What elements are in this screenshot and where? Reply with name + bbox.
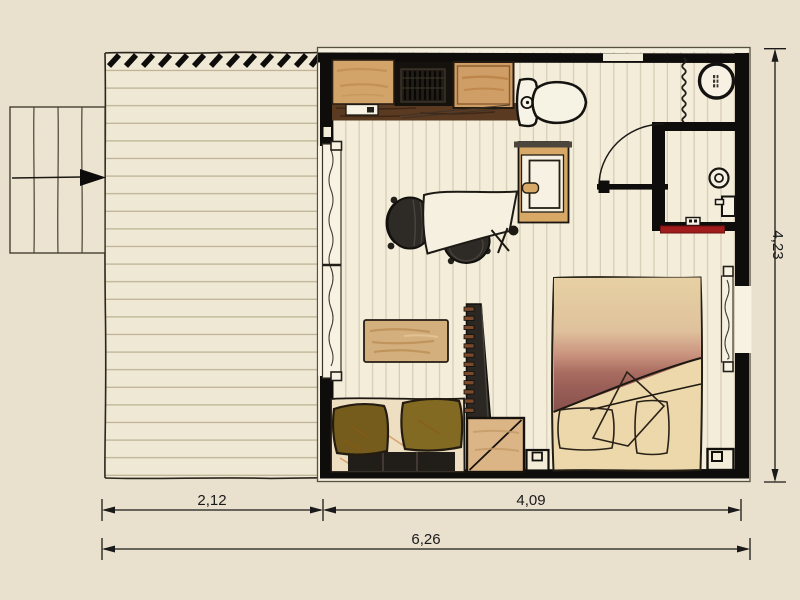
svg-text:6,26: 6,26 — [411, 531, 440, 548]
svg-text:4,23: 4,23 — [769, 230, 786, 259]
svg-text:4,09: 4,09 — [516, 492, 545, 509]
svg-text:2,12: 2,12 — [197, 492, 226, 509]
